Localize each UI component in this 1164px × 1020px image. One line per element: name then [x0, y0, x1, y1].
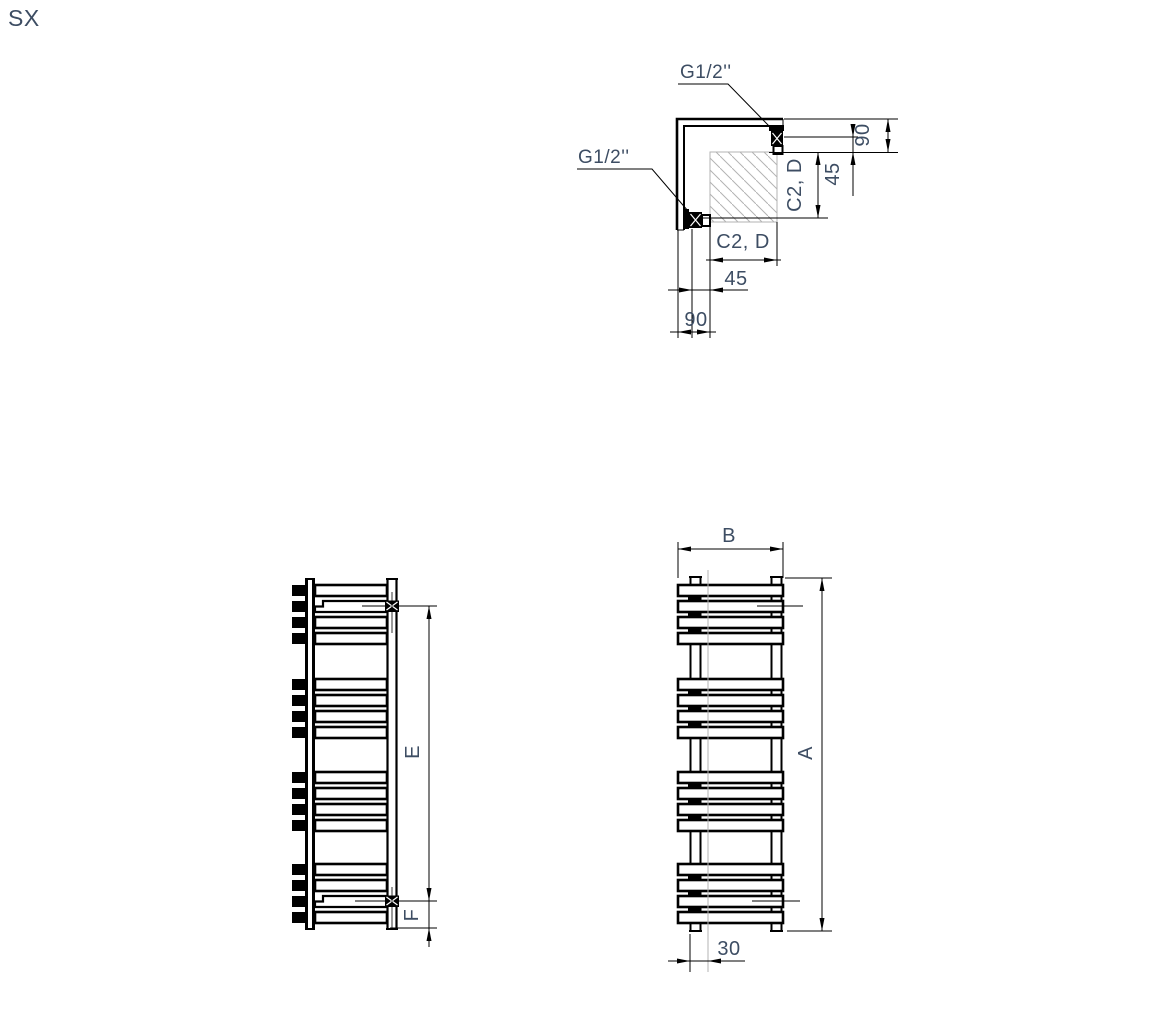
front-view-tubes: [689, 577, 783, 931]
front-view: B A 30: [668, 525, 832, 972]
dim-90-horizontal: 90: [684, 309, 707, 331]
dim-c2d-horizontal: C2, D: [716, 231, 770, 253]
dim-45-vertical: 45: [822, 162, 844, 185]
hatched-corner-section: [710, 152, 777, 222]
dim-a-label: A: [795, 746, 817, 760]
dim-30-label: 30: [717, 938, 740, 960]
thread-label-top: G1/2'': [680, 62, 731, 83]
side-view-dimension-lines: [427, 606, 432, 947]
fitting-top: [769, 125, 784, 154]
front-view-bars: [678, 585, 783, 923]
dim-c2d-vertical: C2, D: [784, 158, 806, 212]
dim-45-horizontal: 45: [724, 268, 747, 290]
side-view-left-tube: [305, 579, 315, 929]
thread-label-left: G1/2'': [578, 147, 629, 168]
side-view-bars: [315, 585, 387, 923]
side-view-tabs: [292, 585, 306, 923]
dim-f-label: F: [401, 909, 423, 922]
dim-90-vertical: 90: [852, 123, 874, 146]
fitting-left: [683, 209, 710, 229]
side-view: E F: [292, 579, 437, 947]
dim-b-lines: [678, 542, 783, 578]
orientation-label: SX: [8, 5, 40, 31]
technical-drawing: SX G1/2'' G1/: [0, 0, 1164, 1020]
corner-connection-detail: G1/2'' G1/2'': [577, 62, 898, 338]
drawing-canvas: SX G1/2'' G1/: [0, 0, 1164, 1020]
dim-b-label: B: [722, 525, 736, 547]
dim-e-label: E: [402, 745, 424, 759]
